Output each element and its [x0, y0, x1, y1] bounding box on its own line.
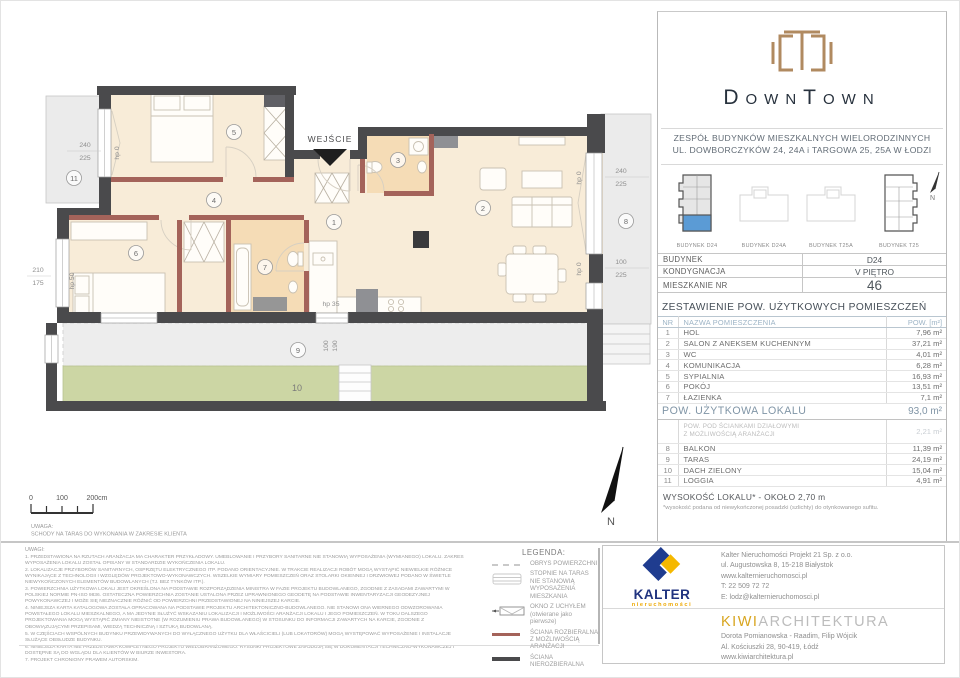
table-row: BUDYNEK D24 [658, 253, 946, 265]
table-row: 5SYPIALNIA16,93 m² [658, 371, 946, 382]
removable-wall-icon [492, 629, 530, 636]
contact-line[interactable]: www.kiwiarchitektura.pl [721, 653, 944, 664]
building-thumb-label: BUDYNEK T25A [800, 243, 862, 249]
svg-text:100: 100 [615, 259, 627, 266]
note-item: 6. NINIEJSZA KARTA NIE PRZEDSTAWIA KOMPL… [25, 645, 470, 657]
building-thumb-label: BUDYNEK D24A [733, 243, 795, 249]
unit-info-table: BUDYNEK D24 KONDYGNACJA V PIĘTRO MIESZKA… [658, 253, 946, 293]
svg-text:7: 7 [263, 263, 267, 272]
room-name: KOMUNIKACJA [678, 360, 886, 371]
svg-text:8: 8 [624, 217, 628, 226]
table-row: 3WC4,01 m² [658, 349, 946, 360]
unit-info-value: D24 [802, 254, 946, 265]
floor-plan-area: WEJŚCIE 240 225 hp 0 210 175 hp 50 240 2… [1, 1, 656, 541]
table-row: KONDYGNACJA V PIĘTRO [658, 265, 946, 277]
col-header-pow: POW. [m²] [886, 317, 946, 328]
room-area: 4,91 m² [886, 475, 946, 486]
table-row: MIESZKANIE NR 46 [658, 277, 946, 293]
shaft-block-4 [356, 289, 378, 313]
table-row: 7ŁAZIENKA7,1 m² [658, 392, 946, 403]
kiwi-name-part2: ARCHITEKTURA [758, 614, 889, 630]
floor-plan: WEJŚCIE 240 225 hp 0 210 175 hp 50 240 2… [1, 1, 656, 541]
north-arrow-small-icon: N [927, 171, 941, 206]
kalter-contact-lines: Kalter Nieruchomości Projekt 21 Sp. z o.… [721, 551, 853, 604]
svg-text:3: 3 [396, 156, 400, 165]
svg-text:hp 0: hp 0 [576, 171, 583, 184]
building-thumb-t25a: BUDYNEK T25A [800, 173, 862, 249]
room-number-11: 11 [67, 171, 82, 186]
area-table: NR NAZWA POMIESZCZENIA POW. [m²] 1HOL7,9… [658, 316, 946, 487]
legend-item: OKNO Z UCHYŁEM (otwierane jako pierwsze) [492, 603, 598, 625]
room-nr: 3 [658, 349, 678, 360]
building-thumb-d24: BUDYNEK D24 [666, 173, 728, 249]
svg-text:100: 100 [323, 340, 330, 352]
room-name: ŁAZIENKA [678, 392, 886, 403]
room-name: POKÓJ [678, 381, 886, 392]
property-card-page: WEJŚCIE 240 225 hp 0 210 175 hp 50 240 2… [0, 0, 960, 678]
note-item: 3. POWIERZCHNIA UŻYTKOWA LOKALI JEST OKR… [25, 587, 470, 605]
site-key-plans: BUDYNEK D24 BUDYNEK D24A BUDYNEK T25A [658, 169, 946, 257]
total-area-value: 93,0 m² [886, 403, 946, 419]
legend-item: STOPNIE NA TARAS NIE STANOWIĄ WYPOSAŻENI… [492, 570, 598, 600]
project-subtitle: ZESPÓŁ BUDYNKÓW MIESZKALNYCH WIELORODZIN… [658, 132, 946, 156]
legend-item: ŚCIANA NIEROZBIERALNA [492, 654, 598, 669]
legend-title: LEGENDA: [522, 548, 598, 557]
room-nr: 10 [658, 465, 678, 476]
svg-text:UWAGA:: UWAGA: [31, 524, 54, 530]
svg-text:2: 2 [481, 204, 485, 213]
room-area: 11,39 m² [886, 443, 946, 454]
room-area: 13,51 m² [886, 381, 946, 392]
room-number-5: 5 [227, 125, 242, 140]
notes-title: UWAGI: [25, 547, 470, 554]
entrance-label: WEJŚCIE [308, 133, 353, 144]
unit-highlight [683, 215, 711, 231]
legend-label: ŚCIANA NIEROZBIERALNA [530, 654, 598, 669]
room-name: WC [678, 349, 886, 360]
subtitle-line-2: UL. DOWBORCZYKÓW 24, 24A i TARGOWA 25, 2… [658, 144, 946, 156]
svg-text:240: 240 [79, 142, 91, 149]
legend-label: OBRYS POWIERZCHNI [530, 560, 597, 567]
contacts-panel: KALTER nieruchomości Kalter Nieruchomośc… [602, 545, 945, 664]
info-panel: DownTown ZESPÓŁ BUDYNKÓW MIESZKALNYCH WI… [657, 11, 947, 542]
building-thumb-label: BUDYNEK D24 [666, 243, 728, 249]
svg-text:225: 225 [615, 272, 627, 279]
room-name: SALON Z ANEKSEM KUCHENNYM [678, 338, 886, 349]
table-row: 1HOL7,96 m² [658, 328, 946, 339]
kiwi-contact-lines: Dorota Pomianowska - Raadim, Filip Wójci… [721, 632, 944, 664]
room-nr: 1 [658, 328, 678, 339]
room-area: 24,19 m² [886, 454, 946, 465]
shaft-block-2 [432, 136, 458, 148]
svg-text:hp 35: hp 35 [322, 301, 339, 308]
legend-item: OBRYS POWIERZCHNI [492, 560, 598, 567]
fixed-wall-icon [492, 654, 530, 661]
room-nr: 11 [658, 475, 678, 486]
disclaimer-notes: UWAGI: 1. PRZEDSTAWIONA NA RZUTACH ARANŻ… [25, 547, 470, 665]
shaft-block-3 [413, 231, 429, 248]
terrace-stairs [339, 365, 371, 405]
svg-text:6: 6 [134, 249, 138, 258]
table-row: 2SALON Z ANEKSEM KUCHENNYM37,21 m² [658, 338, 946, 349]
kiwi-name-part1: KIWI [721, 614, 758, 630]
note-item: 7. PROJEKT CHRONIONY PRAWEM AUTORSKIM. [25, 658, 470, 664]
outline-dash-icon [492, 560, 530, 566]
table-header-row: NR NAZWA POMIESZCZENIA POW. [m²] [658, 317, 946, 328]
svg-text:hp 0: hp 0 [114, 146, 121, 159]
kiwi-block: KIWIARCHITEKTURA Dorota Pomianowska - Ra… [603, 609, 944, 664]
table-row: 9TARAS24,19 m² [658, 454, 946, 465]
room-name: LOGGIA [678, 475, 886, 486]
north-arrow-icon: N [601, 447, 623, 528]
col-header-name: NAZWA POMIESZCZENIA [678, 317, 886, 328]
brand-wordmark: DownTown [658, 86, 946, 110]
svg-text:SCHODY NA TARAS DO WYKONANIA W: SCHODY NA TARAS DO WYKONANIA W ZAKRESIE … [31, 532, 187, 538]
room-nr: 4 [658, 360, 678, 371]
loggia-area [46, 96, 103, 203]
kiwi-logo: KIWIARCHITEKTURA [721, 614, 944, 630]
room-number-4: 4 [207, 193, 222, 208]
kalter-logo: KALTER nieruchomości [603, 547, 721, 608]
room-number-9: 9 [291, 343, 306, 358]
apartment-number: 46 [802, 278, 946, 292]
room-number-2: 2 [476, 201, 491, 216]
contact-line[interactable]: www.kalternieruchomosci.pl [721, 572, 853, 583]
unit-height-footnote: *wysokość podana od niewykończonej posad… [663, 505, 878, 511]
room-name: HOL [678, 328, 886, 339]
kalter-logo-icon [639, 547, 685, 581]
partition-label-line1: POW. POD ŚCIANKAMI DZIAŁOWYMI [684, 423, 886, 431]
kalter-block: KALTER nieruchomości Kalter Nieruchomośc… [603, 546, 944, 609]
divider [661, 128, 943, 129]
room-name: BALKON [678, 443, 886, 454]
room-area: 4,01 m² [886, 349, 946, 360]
note-item: 2. LOKALIZACJE PRZYBORÓW SANITARNYCH, OS… [25, 568, 470, 586]
room-number-10: 10 [292, 383, 302, 393]
legend-panel: LEGENDA: OBRYS POWIERZCHNI STOPNIE NA TA… [480, 548, 600, 644]
table-row: 6POKÓJ13,51 m² [658, 381, 946, 392]
legend-label: OKNO Z UCHYŁEM (otwierane jako pierwsze) [530, 603, 598, 625]
room-name: DACH ZIELONY [678, 465, 886, 476]
unit-height-note: WYSOKOŚĆ LOKALU* - OKOŁO 2,70 m [663, 492, 825, 502]
table-row: 10DACH ZIELONY15,04 m² [658, 465, 946, 476]
svg-text:hp 0: hp 0 [576, 262, 583, 275]
svg-text:N: N [930, 195, 935, 201]
unit-info-label: KONDYGNACJA [658, 267, 802, 276]
room-area: 7,1 m² [886, 392, 946, 403]
contact-line: Dorota Pomianowska - Raadim, Filip Wójci… [721, 632, 944, 643]
table-row: 8BALKON11,39 m² [658, 443, 946, 454]
room-nr: 6 [658, 381, 678, 392]
building-thumb-t25: BUDYNEK T25 [868, 173, 930, 249]
tilt-window-icon [492, 603, 530, 624]
col-header-nr: NR [658, 317, 678, 328]
svg-text:240: 240 [615, 168, 627, 175]
divider [661, 164, 943, 165]
washer-block [253, 297, 287, 311]
footer-band: UWAGI: 1. PRZEDSTAWIONA NA RZUTACH ARANŻ… [1, 541, 960, 678]
contact-line: Kalter Nieruchomości Projekt 21 Sp. z o.… [721, 551, 853, 562]
unit-info-value: V PIĘTRO [802, 266, 946, 277]
room-nr: 8 [658, 443, 678, 454]
north-label: N [607, 516, 615, 528]
area-table-title: ZESTAWIENIE POW. UŻYTKOWYCH POMIESZCZEŃ [662, 302, 927, 313]
svg-text:190: 190 [332, 340, 339, 352]
room-area: 37,21 m² [886, 338, 946, 349]
note-item: 1. PRZEDSTAWIONA NA RZUTACH ARANŻACJA MA… [25, 555, 470, 567]
legend-label: ŚCIANA ROZBIERALNA Z MOŻLIWOŚCIĄ ARANŻAC… [530, 629, 598, 651]
room-number-3: 3 [391, 153, 406, 168]
svg-text:225: 225 [615, 181, 627, 188]
legend-label: STOPNIE NA TARAS NIE STANOWIĄ WYPOSAŻENI… [530, 570, 598, 600]
svg-text:210: 210 [32, 267, 44, 274]
shaft-block-1 [264, 95, 288, 107]
kalter-tagline: nieruchomości [603, 602, 721, 608]
svg-text:0: 0 [29, 495, 33, 502]
svg-text:11: 11 [70, 174, 78, 183]
partition-area-row: POW. POD ŚCIANKAMI DZIAŁOWYMI Z MOŻLIWOŚ… [658, 419, 946, 443]
room-name: SYPIALNIA [678, 371, 886, 382]
terrace-steps-icon [492, 570, 530, 590]
downtown-logo-icon [658, 20, 946, 87]
svg-text:100: 100 [56, 495, 68, 502]
total-area-row: POW. UŻYTKOWA LOKALU 93,0 m² [658, 403, 946, 419]
building-thumb-label: BUDYNEK T25 [868, 243, 930, 249]
room-number-8: 8 [619, 214, 634, 229]
room-number-6: 6 [129, 246, 144, 261]
room-area: 15,04 m² [886, 465, 946, 476]
partition-label-line2: Z MOŻLIWOŚCIĄ ARANŻACJI [684, 431, 886, 439]
room-nr: 7 [658, 392, 678, 403]
svg-text:175: 175 [32, 280, 44, 287]
partition-label: POW. POD ŚCIANKAMI DZIAŁOWYMI Z MOŻLIWOŚ… [678, 419, 886, 443]
svg-text:hp 50: hp 50 [69, 272, 76, 289]
room-nr: 9 [658, 454, 678, 465]
room-number-1: 1 [327, 215, 342, 230]
total-area-label: POW. UŻYTKOWA LOKALU [658, 403, 886, 419]
room-area: 6,28 m² [886, 360, 946, 371]
svg-text:1: 1 [332, 218, 336, 227]
contact-line: ul. Augustowska 8, 15-218 Białystok [721, 561, 853, 572]
building-thumb-d24a: BUDYNEK D24A [733, 173, 795, 249]
svg-text:200cm: 200cm [86, 495, 107, 502]
unit-info-label: BUDYNEK [658, 255, 802, 264]
scale-bar: 0 100 200cm UWAGA: SCHODY NA TARAS DO WY… [29, 495, 187, 538]
room-area: 7,96 m² [886, 328, 946, 339]
note-item: 4. NINIEJSZA KARTA KATALOGOWA ZOSTAŁA OP… [25, 606, 470, 630]
svg-text:9: 9 [296, 346, 300, 355]
kalter-name: KALTER [603, 587, 721, 602]
table-row: 4KOMUNIKACJA6,28 m² [658, 360, 946, 371]
room-number-7: 7 [258, 260, 273, 275]
partition-nr [658, 419, 678, 443]
svg-text:225: 225 [79, 155, 91, 162]
room-name: TARAS [678, 454, 886, 465]
green-roof-area [63, 366, 589, 403]
contact-line: T: 22 509 72 72 [721, 582, 853, 593]
table-row: 11LOGGIA4,91 m² [658, 475, 946, 486]
contact-line: Al. Kościuszki 28, 90-419, Łódź [721, 643, 944, 654]
room-area: 16,93 m² [886, 371, 946, 382]
contact-line[interactable]: E: lodz@kalternieruchomosci.pl [721, 593, 853, 604]
unit-info-label: MIESZKANIE NR [658, 281, 802, 290]
legend-item: ŚCIANA ROZBIERALNA Z MOŻLIWOŚCIĄ ARANŻAC… [492, 629, 598, 651]
note-item: 5. W CZĘŚCIACH WSPÓLNYCH BUDYNKU PRZEWID… [25, 632, 470, 644]
room-nr: 5 [658, 371, 678, 382]
room-nr: 2 [658, 338, 678, 349]
partition-area-value: 2,21 m² [886, 419, 946, 443]
subtitle-line-1: ZESPÓŁ BUDYNKÓW MIESZKALNYCH WIELORODZIN… [658, 132, 946, 144]
svg-text:4: 4 [212, 196, 216, 205]
svg-text:5: 5 [232, 128, 236, 137]
